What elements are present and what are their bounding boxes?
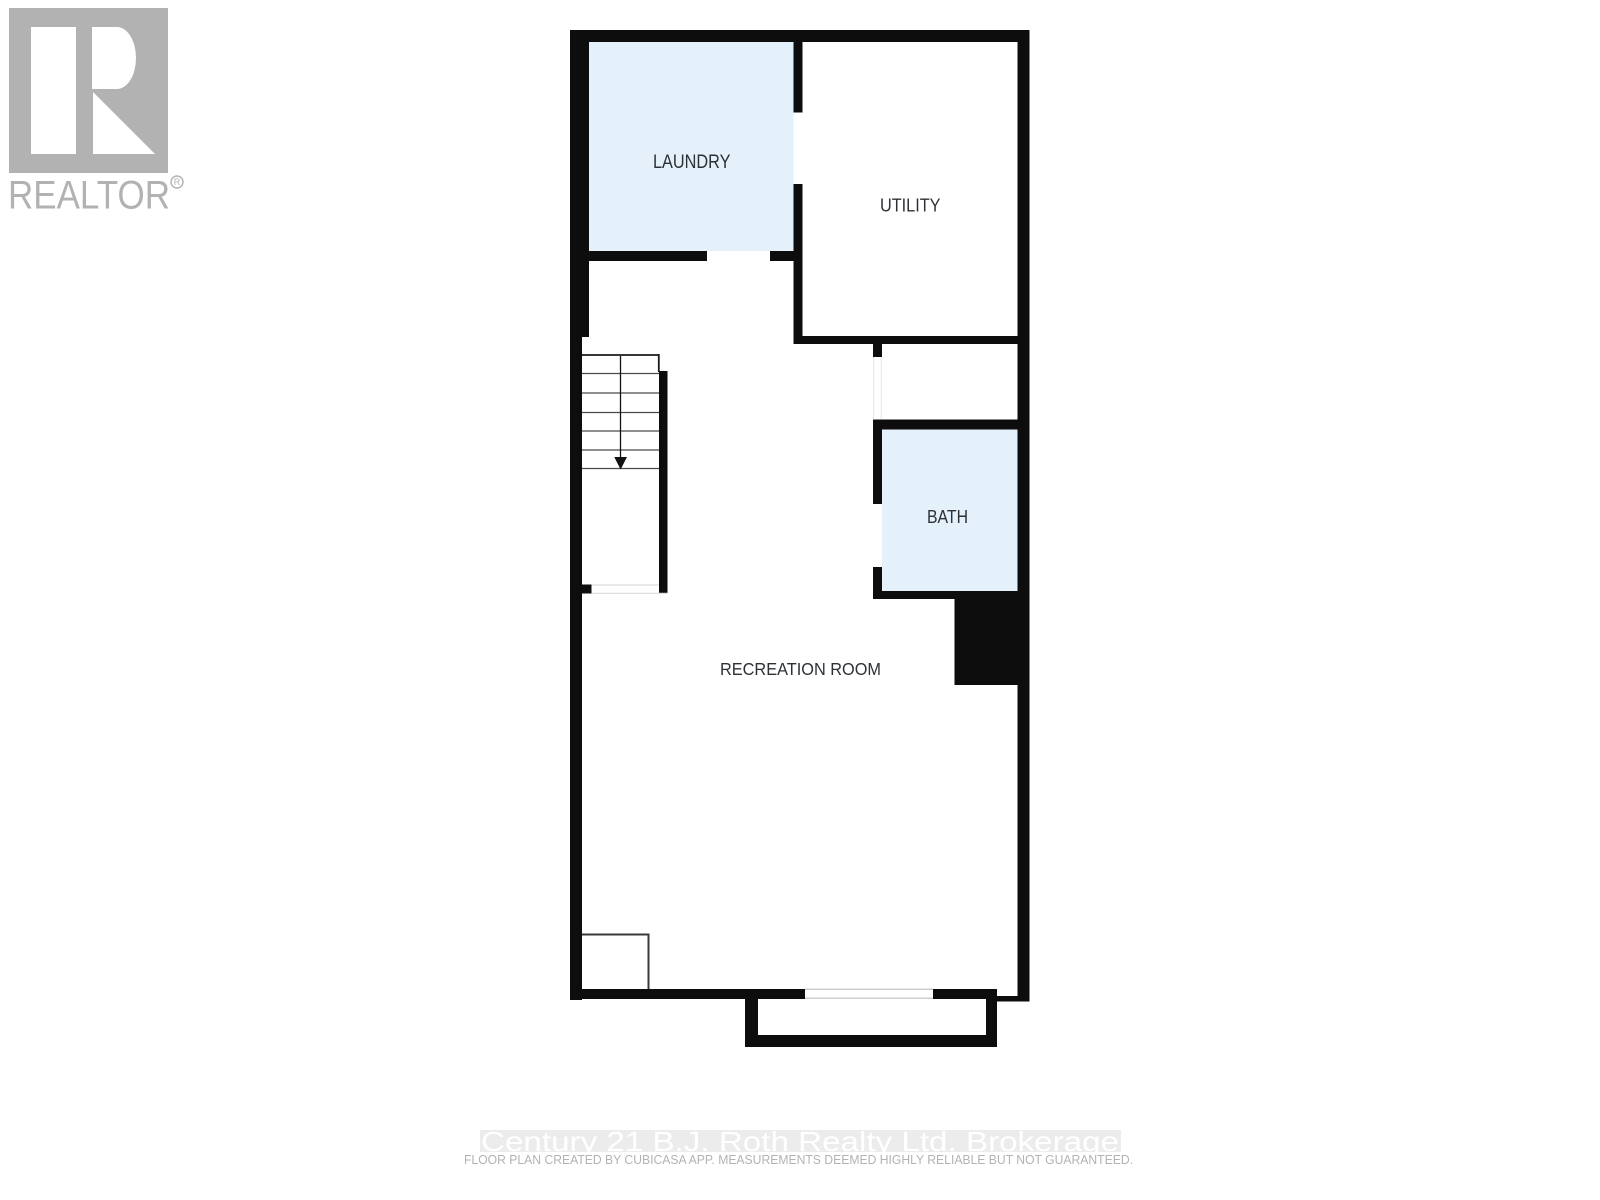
svg-text:UTILITY: UTILITY: [880, 196, 941, 217]
svg-text:FLOOR PLAN CREATED BY CUBICASA: FLOOR PLAN CREATED BY CUBICASA APP. MEAS…: [464, 1152, 1133, 1167]
svg-text:LAUNDRY: LAUNDRY: [653, 151, 731, 173]
svg-text:BATH: BATH: [927, 506, 968, 527]
svg-text:RECREATION ROOM: RECREATION ROOM: [720, 659, 881, 679]
svg-text:REALTOR: REALTOR: [8, 174, 170, 218]
svg-text:R: R: [174, 177, 181, 187]
